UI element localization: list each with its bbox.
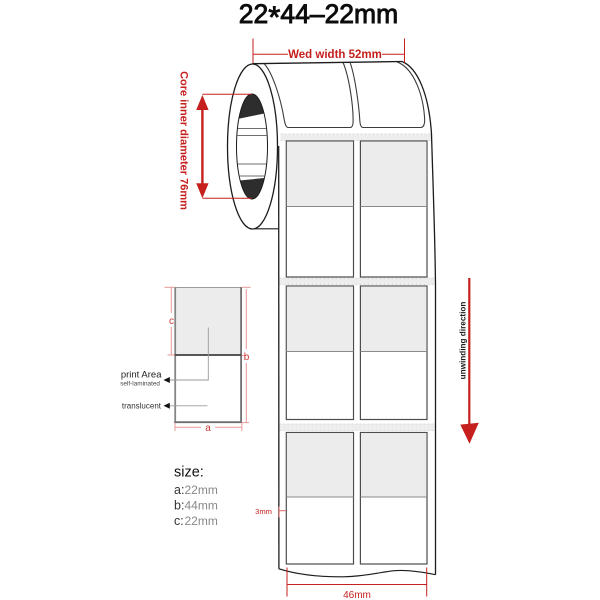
svg-text:46mm: 46mm: [343, 590, 371, 600]
svg-text:c:: c:: [174, 514, 184, 528]
svg-text:size:: size:: [174, 465, 204, 481]
svg-text:b:: b:: [174, 499, 184, 513]
svg-text:c: c: [169, 316, 174, 327]
svg-text:self-laminated: self-laminated: [120, 381, 160, 388]
svg-text:b: b: [244, 352, 250, 363]
svg-text:22mm: 22mm: [185, 483, 218, 497]
svg-text:a:: a:: [174, 483, 184, 497]
svg-text:22mm: 22mm: [185, 514, 218, 528]
svg-text:translucent: translucent: [122, 402, 162, 411]
svg-text:a: a: [205, 423, 211, 434]
svg-text:Core inner diameter 76mm: Core inner diameter 76mm: [178, 71, 190, 210]
svg-text:print Area: print Area: [121, 370, 162, 381]
svg-text:Wed width 52mm: Wed width 52mm: [288, 49, 382, 61]
svg-text:3mm: 3mm: [255, 507, 272, 516]
svg-text:44mm: 44mm: [185, 499, 218, 513]
svg-text:unwinding direction: unwinding direction: [458, 302, 467, 380]
